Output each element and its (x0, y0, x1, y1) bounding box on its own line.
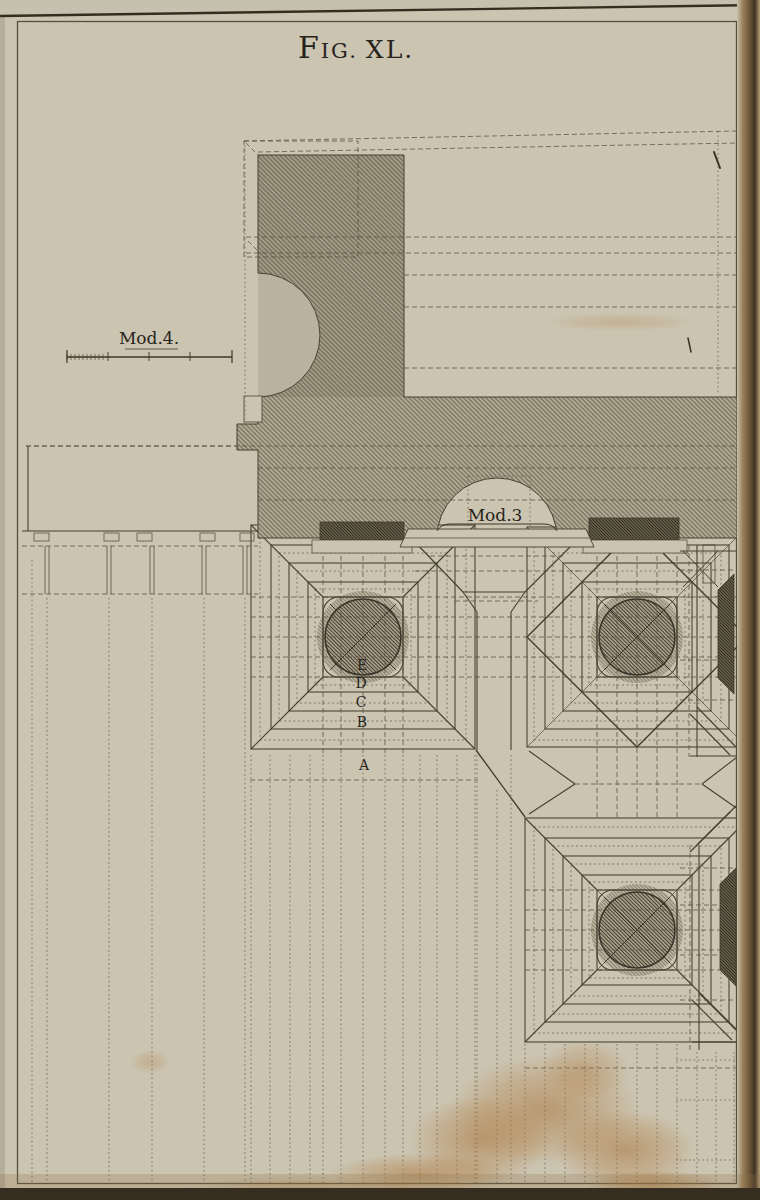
niche-platform (400, 529, 594, 547)
scale-bar-mod4-label: Mod.4. (119, 328, 179, 348)
plinth-letter-d: D (355, 675, 366, 691)
plinth-letter-b: B (357, 714, 367, 730)
engraved-plate: Mod.4. (0, 0, 760, 1200)
plinth-letter-a: A (358, 757, 370, 773)
page-gutter (737, 0, 760, 1200)
plinth-letter-e: E (357, 657, 367, 673)
dimension-mod3-label: Mod.3 (468, 505, 523, 525)
plinth-letter-c: C (356, 694, 367, 710)
wall-pier-right (583, 518, 687, 553)
page-left-edge (0, 0, 5, 1200)
wall-hatch-darker-overlay (258, 155, 404, 397)
page-bottom-edge (0, 1188, 760, 1200)
page-bottom-stain-strip (0, 1174, 760, 1188)
wall-pier-center (312, 522, 412, 553)
wall-step-notch (244, 396, 262, 422)
